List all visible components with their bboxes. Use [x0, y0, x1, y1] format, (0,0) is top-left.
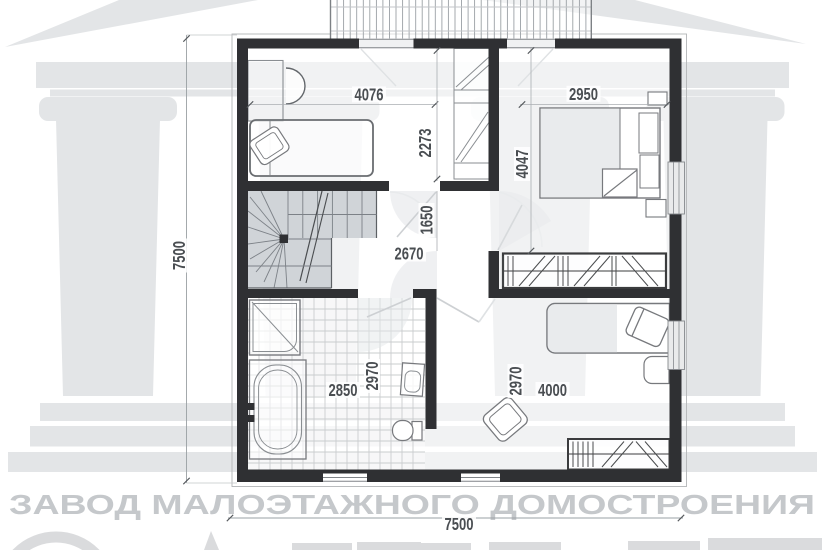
svg-text:2970: 2970	[362, 361, 382, 390]
svg-text:2970: 2970	[506, 366, 526, 395]
svg-text:2273: 2273	[415, 128, 435, 157]
svg-text:ЗАВОД МАЛОЭТАЖНОГО ДОМОСТРОЕНИ: ЗАВОД МАЛОЭТАЖНОГО ДОМОСТРОЕНИЯ	[9, 489, 815, 520]
svg-text:7500: 7500	[169, 241, 189, 270]
svg-text:4076: 4076	[355, 84, 384, 104]
svg-text:2850: 2850	[329, 380, 358, 400]
svg-text:4047: 4047	[512, 150, 532, 179]
svg-text:1650: 1650	[417, 205, 437, 234]
svg-text:7500: 7500	[445, 514, 474, 534]
svg-text:4000: 4000	[538, 380, 567, 400]
svg-text:2950: 2950	[569, 84, 598, 104]
svg-text:2670: 2670	[395, 244, 424, 264]
